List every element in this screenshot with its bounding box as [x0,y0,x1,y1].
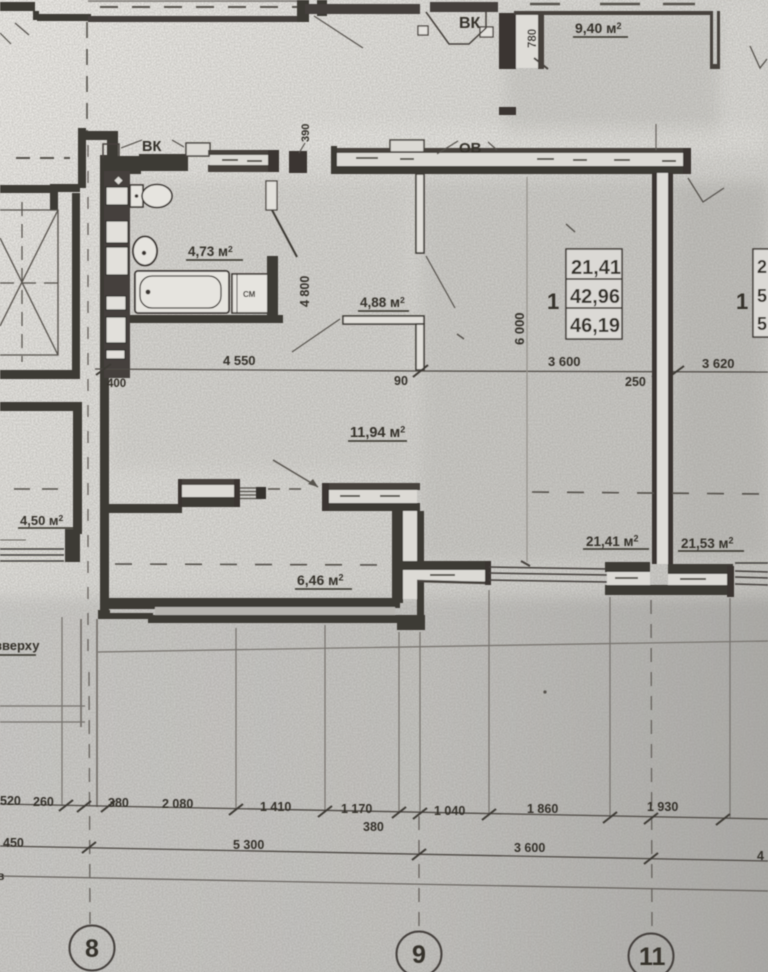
svg-text:2 080: 2 080 [162,797,193,811]
svg-text:450: 450 [3,836,24,850]
svg-text:46,19: 46,19 [570,315,620,337]
svg-text:11,94 м2: 11,94 м2 [350,425,405,442]
svg-text:СМ: СМ [243,290,256,299]
svg-text:4,88 м2: 4,88 м2 [360,295,405,310]
svg-text:6 000: 6 000 [512,312,527,345]
svg-text:5 300: 5 300 [233,838,264,852]
svg-text:5: 5 [757,314,767,334]
svg-text:1 930: 1 930 [647,800,678,814]
svg-text:4,50 м2: 4,50 м2 [20,513,64,528]
svg-text:21,53 м2: 21,53 м2 [681,536,734,552]
svg-text:6,46 м2: 6,46 м2 [297,572,344,588]
svg-text:4,73 м2: 4,73 м2 [188,244,233,259]
svg-text:ВК: ВК [142,139,161,155]
svg-text:21,41: 21,41 [571,257,621,279]
svg-text:3 600: 3 600 [548,354,581,369]
svg-text:4: 4 [757,849,764,863]
svg-text:1 170: 1 170 [341,802,372,816]
svg-text:8: 8 [85,935,99,963]
svg-text:9,40 м2: 9,40 м2 [575,20,622,36]
svg-text:ОВ: ОВ [459,140,482,157]
svg-text:380: 380 [108,796,129,810]
svg-text:4 800: 4 800 [298,276,312,307]
svg-text:90: 90 [394,374,408,388]
svg-text:4 550: 4 550 [223,353,256,368]
svg-text:вверху: вверху [0,638,40,653]
svg-text:260: 260 [33,795,54,809]
svg-text:1 410: 1 410 [260,800,291,814]
svg-text:400: 400 [107,378,126,390]
svg-text:11: 11 [639,943,666,971]
svg-text:21,41 м2: 21,41 м2 [586,534,639,550]
svg-text:3 620: 3 620 [702,356,735,371]
svg-text:520: 520 [0,794,21,808]
svg-text:780: 780 [527,29,539,48]
svg-text:5: 5 [757,286,767,306]
svg-text:ВК: ВК [459,15,481,32]
svg-text:9: 9 [412,941,426,969]
svg-text:250: 250 [625,375,646,389]
svg-text:1 860: 1 860 [527,802,558,816]
svg-text:3 600: 3 600 [514,841,545,855]
svg-text:1 040: 1 040 [434,804,465,818]
svg-text:380: 380 [363,820,384,834]
svg-text:1: 1 [736,289,748,314]
svg-text:390: 390 [300,124,312,142]
svg-text:2: 2 [757,257,767,277]
svg-text:1: 1 [547,289,559,314]
svg-text:в: в [0,869,4,883]
svg-text:42,96: 42,96 [570,286,620,308]
